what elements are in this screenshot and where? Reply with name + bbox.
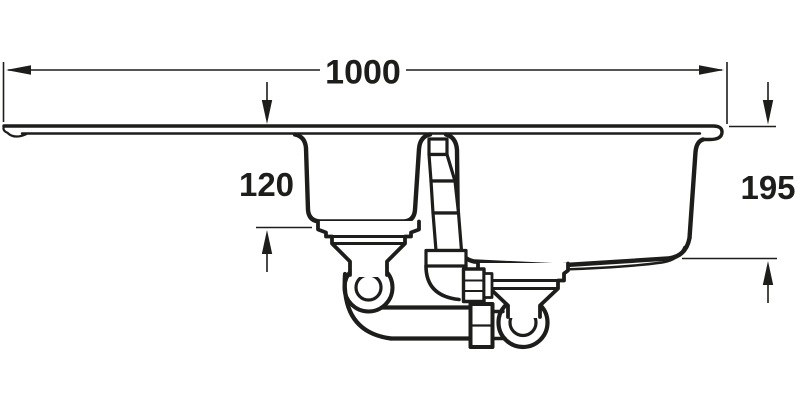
dimension-main-bowl-depth: 195 xyxy=(682,82,796,303)
up-arrowhead xyxy=(763,261,773,285)
overflow-elbow-outer xyxy=(426,266,459,300)
overflow-segment-3 xyxy=(433,213,462,251)
half-bowl xyxy=(295,135,430,222)
overflow-nut xyxy=(464,269,485,302)
half-bowl-waste-fill xyxy=(318,221,419,277)
half-bowl-depth-label: 120 xyxy=(239,166,294,203)
main-bowl-depth-label: 195 xyxy=(740,169,795,206)
down-arrowhead xyxy=(763,100,773,125)
half-bowl-trap-inner xyxy=(356,275,381,300)
overflow-segment-1 xyxy=(429,155,455,182)
overflow-segment-2 xyxy=(431,181,459,213)
sink-deck xyxy=(3,126,722,140)
overflow-connector xyxy=(429,139,447,155)
plumbing-kit xyxy=(318,139,568,347)
arrowhead-left xyxy=(6,65,31,74)
up-arrowhead xyxy=(262,230,272,254)
sink-technical-drawing: 1000 120 195 xyxy=(0,0,800,400)
waste-pipe xyxy=(382,308,472,339)
main-bowl xyxy=(446,135,703,266)
overflow-collar xyxy=(426,251,466,267)
overflow-nut-lip xyxy=(484,274,492,298)
arrowhead-right xyxy=(699,65,724,74)
dimension-overall-width: 1000 xyxy=(4,54,728,125)
down-arrowhead xyxy=(262,100,272,124)
overall-width-label: 1000 xyxy=(325,54,401,92)
dimension-half-bowl-depth: 120 xyxy=(239,82,312,272)
